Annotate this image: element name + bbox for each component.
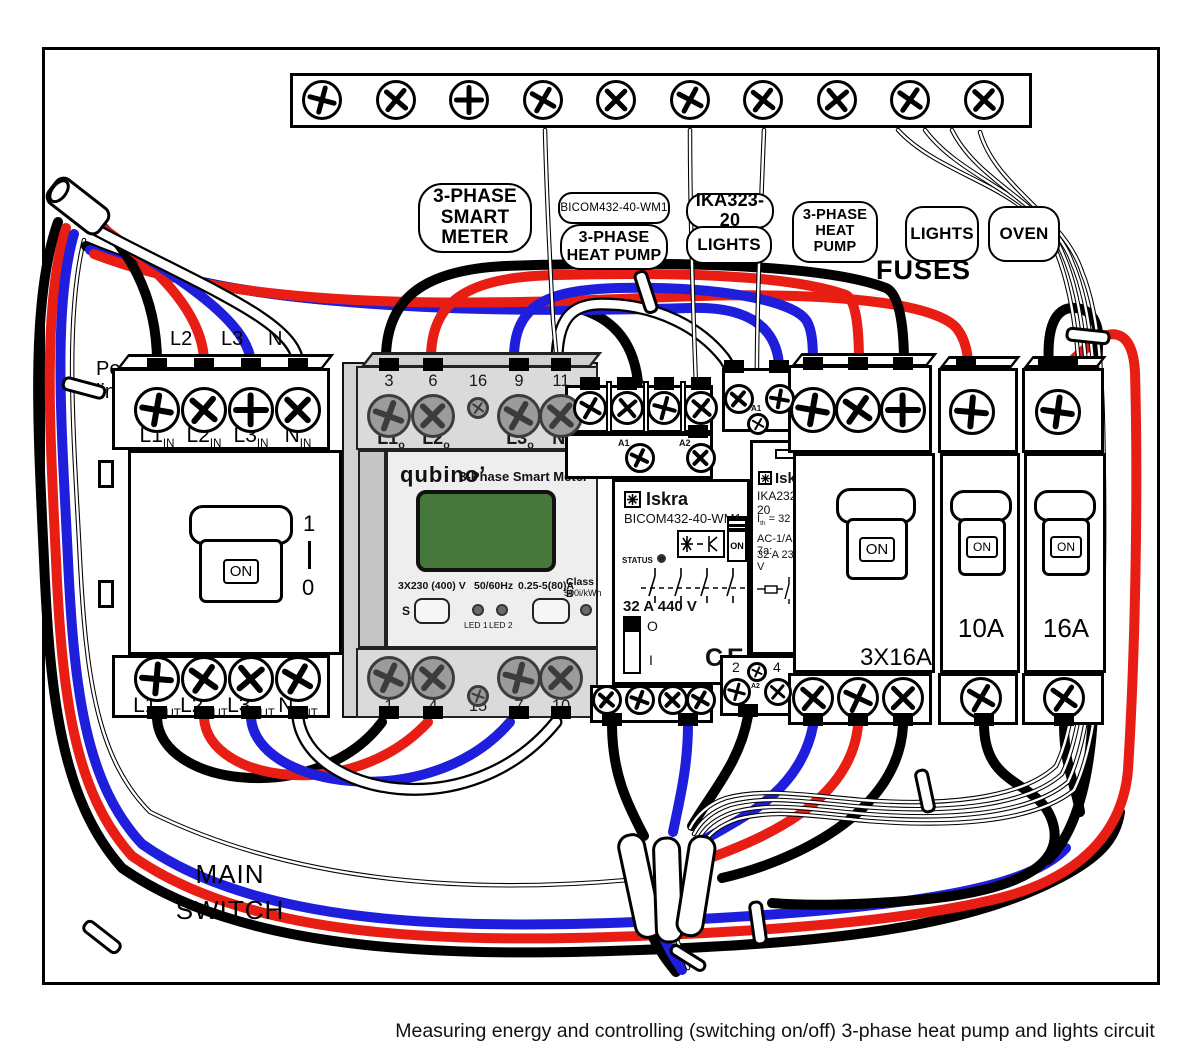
- tags-smart_meter-l2: SMART: [441, 208, 510, 229]
- tag-heat-pump-1: 3-PHASEHEAT PUMP: [560, 224, 668, 270]
- bicom-status-led: [657, 554, 666, 563]
- bicom-indicator-stripes: [727, 516, 747, 530]
- terminal-slot: [147, 358, 167, 371]
- terminal-slot: [241, 706, 261, 719]
- screw-icon: [964, 80, 1004, 120]
- position-1-label: 1: [303, 511, 315, 537]
- b10-toggle: ON: [958, 518, 1006, 576]
- meter-led2-label: LED 2: [489, 620, 513, 630]
- screw-icon: [467, 397, 489, 419]
- b3-body: ON 3X16A: [793, 453, 935, 673]
- g: [727, 568, 733, 603]
- screw-icon: [367, 656, 411, 700]
- terminal-slot: [974, 713, 994, 726]
- terminal-slot: [848, 713, 868, 726]
- position-0-label: 0: [302, 575, 314, 601]
- i: [1053, 683, 1076, 712]
- b10-on-label: ON: [966, 536, 998, 558]
- screw-icon: [181, 387, 227, 433]
- terminal-slot: [724, 360, 744, 373]
- main_switch-label2: SWITCH: [150, 892, 310, 928]
- screw-icon: [228, 387, 274, 433]
- b16-on-label: ON: [1050, 536, 1082, 558]
- screw-icon: [573, 391, 607, 425]
- line: [701, 576, 707, 596]
- main-switch-caption: MAINSWITCH: [150, 784, 310, 1000]
- tags-smart_meter-l3: METER: [441, 228, 509, 249]
- terminal-slot: [1058, 357, 1078, 370]
- screw-icon: [497, 394, 541, 438]
- terminal-slot: [956, 357, 976, 370]
- main_switch-in-1-s: IN: [210, 438, 222, 450]
- tag-lights-2: LIGHTS: [905, 206, 979, 262]
- screw-icon: [596, 80, 636, 120]
- meter-spec-freq: 50/60Hz: [474, 580, 513, 592]
- screw-icon: [367, 394, 411, 438]
- tag-ika: IKA323-20: [686, 193, 774, 229]
- screw-icon: [134, 656, 180, 702]
- iskra-logo-icon: [624, 491, 641, 508]
- meter-lcd-screen: [416, 490, 556, 572]
- screw-icon: [610, 391, 644, 425]
- screw-icon: [724, 384, 754, 414]
- tag-oven: OVEN: [988, 206, 1060, 262]
- terminal-slot: [893, 713, 913, 726]
- screw-icon: [647, 391, 681, 425]
- screw-icon: [684, 391, 718, 425]
- i: [845, 394, 870, 426]
- screw-icon: [625, 443, 655, 473]
- terminal-slot: [678, 713, 698, 726]
- terminal-slot: [379, 358, 399, 371]
- ika-terminal-4: 4: [773, 659, 781, 675]
- meter-led2: [496, 604, 508, 616]
- meter-s-label: S: [402, 604, 410, 618]
- optocoupler-icon: [679, 532, 723, 556]
- i: [287, 662, 310, 695]
- screw-icon: [880, 387, 926, 433]
- screw-icon: [743, 80, 783, 120]
- b10-bevel: [939, 356, 1020, 368]
- terminal-slot: [423, 706, 443, 719]
- main_switch-in-2-s: IN: [257, 438, 269, 450]
- bicom-on: ON: [730, 541, 744, 551]
- screw-icon: [723, 678, 751, 706]
- terminal-slot: [551, 706, 571, 719]
- tags-heat_pump2-l2: HEAT PUMP: [794, 224, 876, 256]
- b10-rating-label: 10A: [943, 613, 1019, 644]
- tags-ika: IKA323-20: [688, 191, 772, 231]
- i: [971, 683, 992, 713]
- screw-icon: [592, 685, 622, 715]
- tags-lights2: LIGHTS: [910, 225, 974, 244]
- tags-heat_pump1-l1: 3-PHASE: [579, 229, 650, 247]
- terminal-slot: [509, 706, 529, 719]
- l3-label: L3: [221, 328, 243, 351]
- position-bar: [308, 541, 311, 569]
- bicom-rating: 32 A 440 V: [623, 598, 697, 615]
- line: [785, 584, 789, 599]
- iskra-logo-icon: [758, 471, 772, 485]
- screw-icon: [411, 394, 455, 438]
- line: [675, 576, 681, 596]
- screw-icon: [376, 80, 416, 120]
- ika-terminal-a2: A2: [751, 683, 760, 690]
- terminal-slot: [288, 706, 308, 719]
- l2-label: L2: [170, 328, 192, 351]
- terminal-slot: [379, 706, 399, 719]
- terminal-slot: [194, 358, 214, 371]
- terminal-slot: [769, 360, 789, 373]
- bicom-o-label: O: [647, 618, 658, 634]
- bicom-status-label: STATUS: [622, 556, 653, 565]
- terminal-slot: [617, 377, 637, 390]
- terminal-slot: [241, 358, 261, 371]
- meter-spec-voltage: 3X230 (400) V: [398, 580, 466, 592]
- meter-face: qubino’ 3-Phase Smart Meter 3X230 (400) …: [386, 450, 598, 648]
- meter-led3: [580, 604, 592, 616]
- terminal-slot: [654, 377, 674, 390]
- terminal-slot: [551, 358, 571, 371]
- i: [508, 400, 530, 432]
- screw-icon: [302, 80, 342, 120]
- screw-icon: [658, 685, 688, 715]
- screw-icon: [449, 80, 489, 120]
- screw-icon: [523, 80, 563, 120]
- abs: [625, 618, 639, 632]
- terminal-slot: [738, 704, 758, 717]
- tags-heat_pump2-l1: 3-PHASE: [803, 208, 867, 224]
- bicom-on-window: ON: [727, 530, 747, 562]
- g: [681, 536, 717, 552]
- rect: [765, 586, 777, 593]
- terminal-slot: [1038, 357, 1058, 370]
- b3-rating-label: 3X16A: [842, 644, 932, 672]
- screw-icon: [949, 389, 995, 435]
- svg: [761, 474, 770, 483]
- screw-icon: [817, 80, 857, 120]
- terminal-slot: [688, 425, 708, 438]
- screw-icon: [467, 685, 489, 707]
- i: [899, 86, 920, 113]
- terminal-slot: [509, 358, 529, 371]
- meter-led1: [472, 604, 484, 616]
- terminal-slot: [1054, 713, 1074, 726]
- terminal-slot: [194, 706, 214, 719]
- ika-terminal-2: 2: [732, 659, 740, 675]
- tags-oven: OVEN: [1000, 225, 1049, 244]
- screw-icon: [497, 656, 541, 700]
- b10-body: ON 10A: [940, 453, 1020, 673]
- bicom-a2-label: A2: [679, 438, 691, 448]
- g: [701, 568, 707, 603]
- screw-icon: [686, 443, 716, 473]
- tag-smart-meter: 3-PHASESMARTMETER: [418, 183, 532, 253]
- b16-toggle: ON: [1042, 518, 1090, 576]
- meter-top-num: 16: [463, 372, 493, 391]
- screw-icon: [670, 80, 710, 120]
- screw-icon: [181, 656, 227, 702]
- terminal-slot: [893, 357, 913, 370]
- bicom-a1-label: A1: [618, 438, 630, 448]
- line: [649, 576, 655, 596]
- tags-bicom: BICOM432-40-WM1: [560, 202, 667, 215]
- screw-icon: [134, 387, 180, 433]
- screw-icon: [890, 80, 930, 120]
- g: [761, 474, 770, 483]
- wiring-diagram: 3-PHASESMARTMETER BICOM432-40-WM1 3-PHAS…: [0, 0, 1200, 1052]
- terminal-slot: [803, 357, 823, 370]
- tag-lights-1: LIGHTS: [686, 226, 772, 264]
- main-switch-clip: [98, 460, 114, 488]
- terminal-slot: [288, 358, 308, 371]
- tags-smart_meter-l1: 3-PHASE: [433, 187, 517, 208]
- b16-body: ON 16A: [1024, 453, 1106, 673]
- screw-icon: [625, 685, 655, 715]
- line: [727, 576, 733, 596]
- main-switch-clip: [98, 580, 114, 608]
- i: [466, 85, 471, 115]
- terminal-slot: [147, 706, 167, 719]
- bicom-brand: Iskra: [646, 489, 688, 510]
- terminal-slot: [848, 357, 868, 370]
- screw-icon: [275, 387, 321, 433]
- screw-icon: [411, 656, 455, 700]
- meter-top-num: 6: [418, 372, 448, 391]
- screw-icon: [790, 387, 836, 433]
- meter-top-num: 3: [374, 372, 404, 391]
- meter-imp-rate: 500i/kWh: [564, 588, 602, 598]
- terminal-slot: [423, 358, 443, 371]
- main-switch-on-label: ON: [223, 559, 260, 584]
- screw-icon: [228, 656, 274, 702]
- main_switch-label1: MAIN: [150, 856, 310, 892]
- b3-toggle: ON: [846, 518, 908, 580]
- tag-heat-pump-2: 3-PHASEHEAT PUMP: [792, 201, 878, 263]
- g: [627, 494, 638, 505]
- svg: [627, 494, 638, 505]
- b16-rating-label: 16A: [1027, 613, 1105, 644]
- tag-bicom: BICOM432-40-WM1: [558, 192, 670, 224]
- bicom-schematic-box: [677, 530, 725, 558]
- screw-icon: [835, 387, 881, 433]
- screw-icon: [747, 662, 767, 682]
- main_switch-in-3-s: IN: [300, 438, 312, 450]
- screw-icon: [747, 413, 769, 435]
- figure-caption: Measuring energy and controlling (switch…: [350, 1020, 1200, 1043]
- main-switch-toggle: ON: [199, 539, 283, 603]
- main-switch-body: ON 1 0: [128, 450, 342, 655]
- fuses-label: FUSES: [876, 255, 971, 286]
- meter-s-button: [414, 598, 450, 624]
- bicom-model: BICOM432-40-WM1: [624, 511, 742, 526]
- i: [191, 663, 216, 695]
- screw-icon: [1035, 389, 1081, 435]
- tags-lights1: LIGHTS: [697, 236, 761, 255]
- path: [709, 536, 717, 552]
- screw-icon: [539, 656, 583, 700]
- n-label: N: [268, 328, 282, 351]
- terminal-slot: [602, 713, 622, 726]
- screw-icon: [275, 656, 321, 702]
- meter-top-num: 9: [504, 372, 534, 391]
- tags-heat_pump1-l2: HEAT PUMP: [567, 247, 662, 265]
- b3-on-label: ON: [859, 537, 896, 562]
- i: [248, 392, 254, 427]
- meter-side: [358, 450, 386, 648]
- screw-icon: [686, 685, 716, 715]
- terminal-slot: [691, 377, 711, 390]
- bicom-switch: [623, 616, 641, 674]
- terminal-slot: [580, 377, 600, 390]
- screw-icon: [764, 678, 792, 706]
- i: [900, 392, 906, 427]
- meter-led1-label: LED 1: [464, 620, 488, 630]
- bicom-i-label: I: [649, 652, 653, 668]
- terminal-slot: [803, 713, 823, 726]
- main_switch-in-0-s: IN: [163, 438, 175, 450]
- meter-button-2: [532, 598, 570, 624]
